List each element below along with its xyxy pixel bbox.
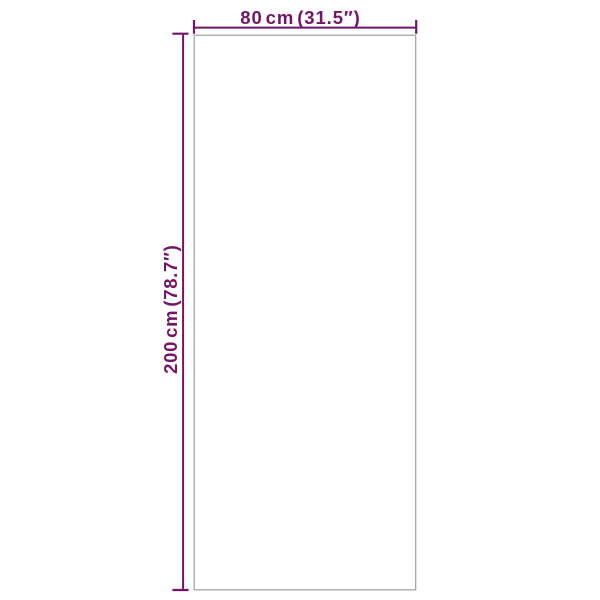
svg-text:200 cm (78.7″): 200 cm (78.7″) bbox=[160, 245, 181, 374]
svg-text:80 cm (31.5″): 80 cm (31.5″) bbox=[240, 7, 361, 28]
